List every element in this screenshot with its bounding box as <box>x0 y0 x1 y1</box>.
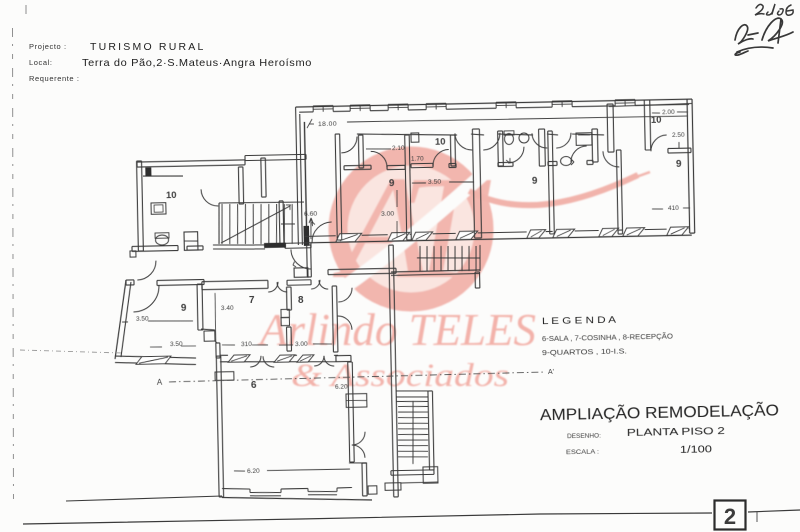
svg-text:3.50: 3.50 <box>428 179 442 186</box>
svg-text:& Associados: & Associados <box>291 358 509 394</box>
svg-text:9: 9 <box>181 303 187 314</box>
svg-text:ESCALA :: ESCALA : <box>566 448 599 456</box>
svg-text:3.40: 3.40 <box>221 305 234 312</box>
svg-text:L E G E N D A: L E G E N D A <box>542 314 617 326</box>
svg-text:Projecto :: Projecto : <box>29 42 67 51</box>
svg-text:10: 10 <box>435 137 446 148</box>
svg-text:3.00: 3.00 <box>295 341 308 348</box>
svg-text:1.70: 1.70 <box>411 156 424 163</box>
svg-text:310: 310 <box>241 341 252 348</box>
svg-text:2.50: 2.50 <box>672 132 685 139</box>
svg-text:18.00: 18.00 <box>318 121 337 128</box>
svg-text:9: 9 <box>532 176 538 187</box>
svg-text:9: 9 <box>389 178 395 189</box>
svg-text:PLANTA PISO 2: PLANTA PISO 2 <box>627 426 726 439</box>
svg-text:A: A <box>157 378 163 387</box>
svg-text:3.50: 3.50 <box>136 316 149 323</box>
svg-text:3.50: 3.50 <box>170 341 183 348</box>
svg-text:410: 410 <box>668 205 679 212</box>
svg-text:1/100: 1/100 <box>680 444 713 456</box>
svg-text:8: 8 <box>298 295 304 306</box>
svg-text:Requerente :: Requerente : <box>29 74 80 83</box>
svg-text:9: 9 <box>676 159 682 170</box>
svg-text:10: 10 <box>651 115 662 126</box>
svg-text:6.20: 6.20 <box>335 384 348 391</box>
svg-text:2.10: 2.10 <box>392 145 405 152</box>
svg-text:Terra do Pão,2·S.Mateus·Angra: Terra do Pão,2·S.Mateus·Angra Heroísmo <box>82 57 312 69</box>
svg-text:Local:: Local: <box>29 58 53 67</box>
svg-text:6.20: 6.20 <box>247 468 260 475</box>
svg-text:2: 2 <box>724 504 736 529</box>
svg-text:TURISMO RURAL: TURISMO RURAL <box>90 41 206 53</box>
svg-text:2.00: 2.00 <box>662 109 675 116</box>
svg-text:3.00: 3.00 <box>381 211 395 218</box>
svg-text:6.60: 6.60 <box>304 211 318 218</box>
svg-text:7: 7 <box>249 295 255 306</box>
svg-text:9-QUARTOS , 10-I.S.: 9-QUARTOS , 10-I.S. <box>542 346 627 357</box>
svg-text:6: 6 <box>251 380 257 391</box>
svg-text:A': A' <box>548 369 554 376</box>
svg-text:DESENHO:: DESENHO: <box>567 432 601 440</box>
svg-text:10: 10 <box>166 190 177 201</box>
